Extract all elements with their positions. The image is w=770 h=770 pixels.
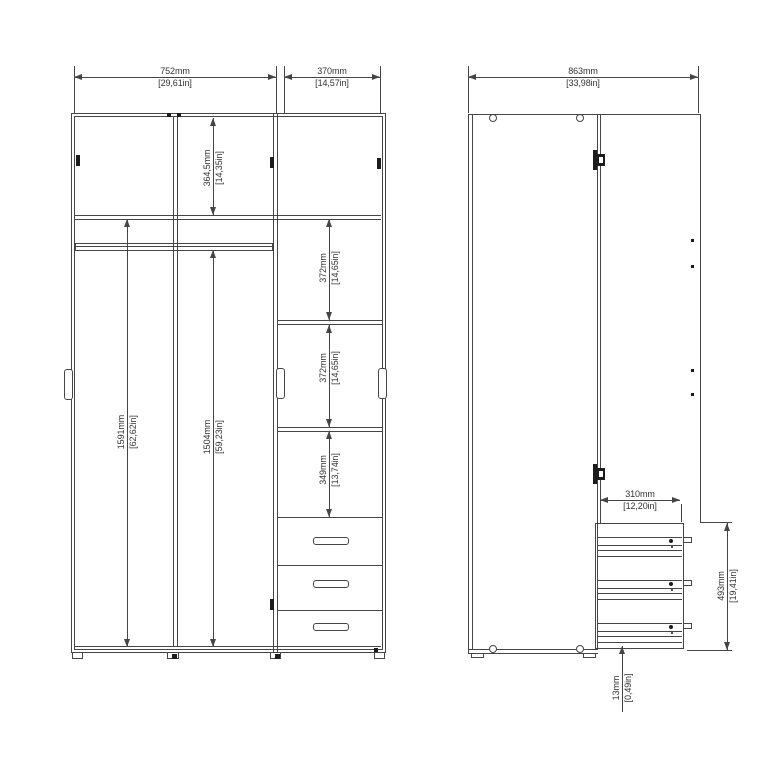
sliding-door-split-line <box>173 117 174 647</box>
hinge-mark <box>377 158 381 169</box>
drawer-slide-peg <box>683 537 692 543</box>
dim-label: 364,5mm [14,35in] <box>201 133 225 203</box>
dim-arrow-down <box>326 509 332 517</box>
dim-label: 372mm [14,65in] <box>317 333 341 403</box>
drawer-slide-line <box>597 580 682 581</box>
drawer-divider-line <box>278 610 382 611</box>
drawer-slide-dot <box>671 589 673 591</box>
side-back-panel-line <box>468 114 469 653</box>
dim-extension-line <box>380 66 381 113</box>
dim-value-mm: 372mm <box>317 233 329 303</box>
drawer-slide-dot <box>671 546 673 548</box>
hinge-icon <box>593 150 606 170</box>
dim-label: 310mm [12,20in] <box>600 488 680 512</box>
screw-hole <box>489 645 497 653</box>
drawer-slide-line <box>597 545 682 546</box>
drawer-handle <box>313 623 349 631</box>
dim-label: 349mm [13,74in] <box>317 435 341 505</box>
drawer-slide-line <box>597 550 682 551</box>
door-handle <box>276 368 285 399</box>
drawer-slide-line <box>597 593 682 594</box>
dim-arrow-down <box>326 419 332 427</box>
bottom-line <box>75 646 381 647</box>
dim-extension-line <box>698 66 699 113</box>
dim-arrow-right <box>690 74 698 80</box>
dim-value-in: [62,62in] <box>127 397 139 467</box>
dim-value-in: [33,98in] <box>543 77 623 89</box>
drawer-slide-dot <box>671 632 673 634</box>
dim-arrow-left <box>74 74 82 80</box>
shelf-line <box>277 427 382 428</box>
dim-label: 372mm [14,65in] <box>317 233 341 303</box>
dim-label: 1591mm [62,62in] <box>115 397 139 467</box>
drawer-corner-mark <box>374 648 378 652</box>
dim-label: 863mm [33,98in] <box>543 65 623 89</box>
dim-value-in: [14,65in] <box>329 333 341 403</box>
dim-arrow-left <box>284 74 292 80</box>
drawer-slide-line <box>597 642 682 643</box>
drawer-slide-dot <box>669 539 673 543</box>
dim-label: 493mm [19,41in] <box>715 551 739 621</box>
dim-label: 752mm [29,61in] <box>135 65 215 89</box>
hanging-rail <box>75 243 273 251</box>
door-handle <box>64 369 73 400</box>
drawer-slide-line <box>597 636 682 637</box>
dim-extension-line <box>276 66 277 113</box>
dim-value-in: [14,35in] <box>213 133 225 203</box>
dim-value-in: [12,20in] <box>600 500 680 512</box>
dim-value-in: [19,41in] <box>727 551 739 621</box>
dim-arrow-down <box>326 312 332 320</box>
dim-value-mm: 1591mm <box>115 397 127 467</box>
center-partition-line <box>273 114 274 652</box>
dim-arrow-up <box>326 219 332 227</box>
dim-value-mm: 372mm <box>317 333 329 403</box>
foot <box>583 653 596 658</box>
dim-arrow-up <box>124 219 130 227</box>
foot <box>72 652 83 659</box>
drawer-divider-line <box>278 565 382 566</box>
dim-value-mm: 863mm <box>543 65 623 77</box>
side-bottom-line <box>468 653 598 654</box>
top-shelf-line <box>75 219 381 220</box>
dim-arrow-left <box>468 74 476 80</box>
dim-value-mm: 1504mm <box>201 402 213 472</box>
technical-drawing-canvas: 752mm [29,61in] 370mm [14,57in] 863mm [3… <box>0 0 770 770</box>
dim-value-in: [29,61in] <box>135 77 215 89</box>
dim-arrow-up <box>210 250 216 258</box>
door-top-mark <box>177 113 181 117</box>
drawer-slide-line <box>597 599 682 600</box>
side-top-line <box>468 114 701 115</box>
dim-value-mm: 310mm <box>600 488 680 500</box>
foot-mark <box>275 654 280 659</box>
hinge-notch <box>599 471 603 477</box>
dim-value-in: [13,74in] <box>329 435 341 505</box>
shelf-line <box>277 320 382 321</box>
side-right-edge-line <box>700 115 701 523</box>
cam-dot <box>691 265 694 268</box>
drawer-slide-dot <box>669 625 673 629</box>
drawer-slide-line <box>597 556 682 557</box>
dim-value-mm: 364,5mm <box>201 133 213 203</box>
drawer-top-line <box>277 517 382 518</box>
dim-arrow-right <box>372 74 380 80</box>
dim-label: 13mm [0,49in] <box>610 653 634 723</box>
dim-value-in: [14,65in] <box>329 233 341 303</box>
cam-dot <box>691 393 694 396</box>
dim-value-mm: 493mm <box>715 551 727 621</box>
door-front-line <box>600 114 601 524</box>
drawer-slide-line <box>597 631 682 632</box>
hinge-mark <box>270 157 274 168</box>
dim-value-in: [59,23in] <box>213 402 225 472</box>
hinge-mark <box>270 599 274 610</box>
dim-extension-line <box>681 504 682 522</box>
dim-value-mm: 752mm <box>135 65 215 77</box>
screw-hole <box>576 114 584 122</box>
dim-arrow-up <box>210 118 216 126</box>
drawer-handle <box>313 580 349 588</box>
hinge-notch <box>599 157 603 163</box>
cam-dot <box>691 369 694 372</box>
screw-hole <box>489 114 497 122</box>
cam-dot <box>691 239 694 242</box>
hinge-mark <box>76 155 80 166</box>
foot <box>374 652 385 659</box>
dim-value-mm: 370mm <box>292 65 372 77</box>
drawer-slide-line <box>597 537 682 538</box>
dim-arrow-up <box>724 523 730 531</box>
dim-label: 1504mm [59,23in] <box>201 402 225 472</box>
dim-extension-line <box>687 650 732 651</box>
top-shelf-line <box>75 215 381 216</box>
side-back-panel-line <box>472 114 473 650</box>
door-handle <box>378 368 387 399</box>
dim-value-mm: 13mm <box>610 653 622 723</box>
dim-value-in: [0,49in] <box>622 653 634 723</box>
drawer-slide-line <box>597 588 682 589</box>
dim-arrow-down <box>210 639 216 647</box>
foot-mark <box>172 654 177 659</box>
dim-value-in: [14,57in] <box>292 77 372 89</box>
drawer-slide-peg <box>683 580 692 586</box>
hanging-rail-line <box>76 246 272 247</box>
dim-arrow-right <box>268 74 276 80</box>
drawer-slide-dot <box>669 582 673 586</box>
drawer-handle <box>313 537 349 545</box>
door-top-mark <box>167 113 171 117</box>
dim-arrow-down <box>124 639 130 647</box>
dim-arrow-down <box>210 207 216 215</box>
screw-hole <box>576 645 584 653</box>
drawer-slide-line <box>597 623 682 624</box>
drawer-slide-peg <box>683 623 692 629</box>
foot <box>471 653 484 658</box>
dim-arrow-up <box>326 325 332 333</box>
hinge-icon <box>593 464 606 484</box>
dim-arrow-down <box>724 642 730 650</box>
sliding-door-split-line <box>177 117 178 647</box>
dim-value-mm: 349mm <box>317 435 329 505</box>
dim-label: 370mm [14,57in] <box>292 65 372 89</box>
